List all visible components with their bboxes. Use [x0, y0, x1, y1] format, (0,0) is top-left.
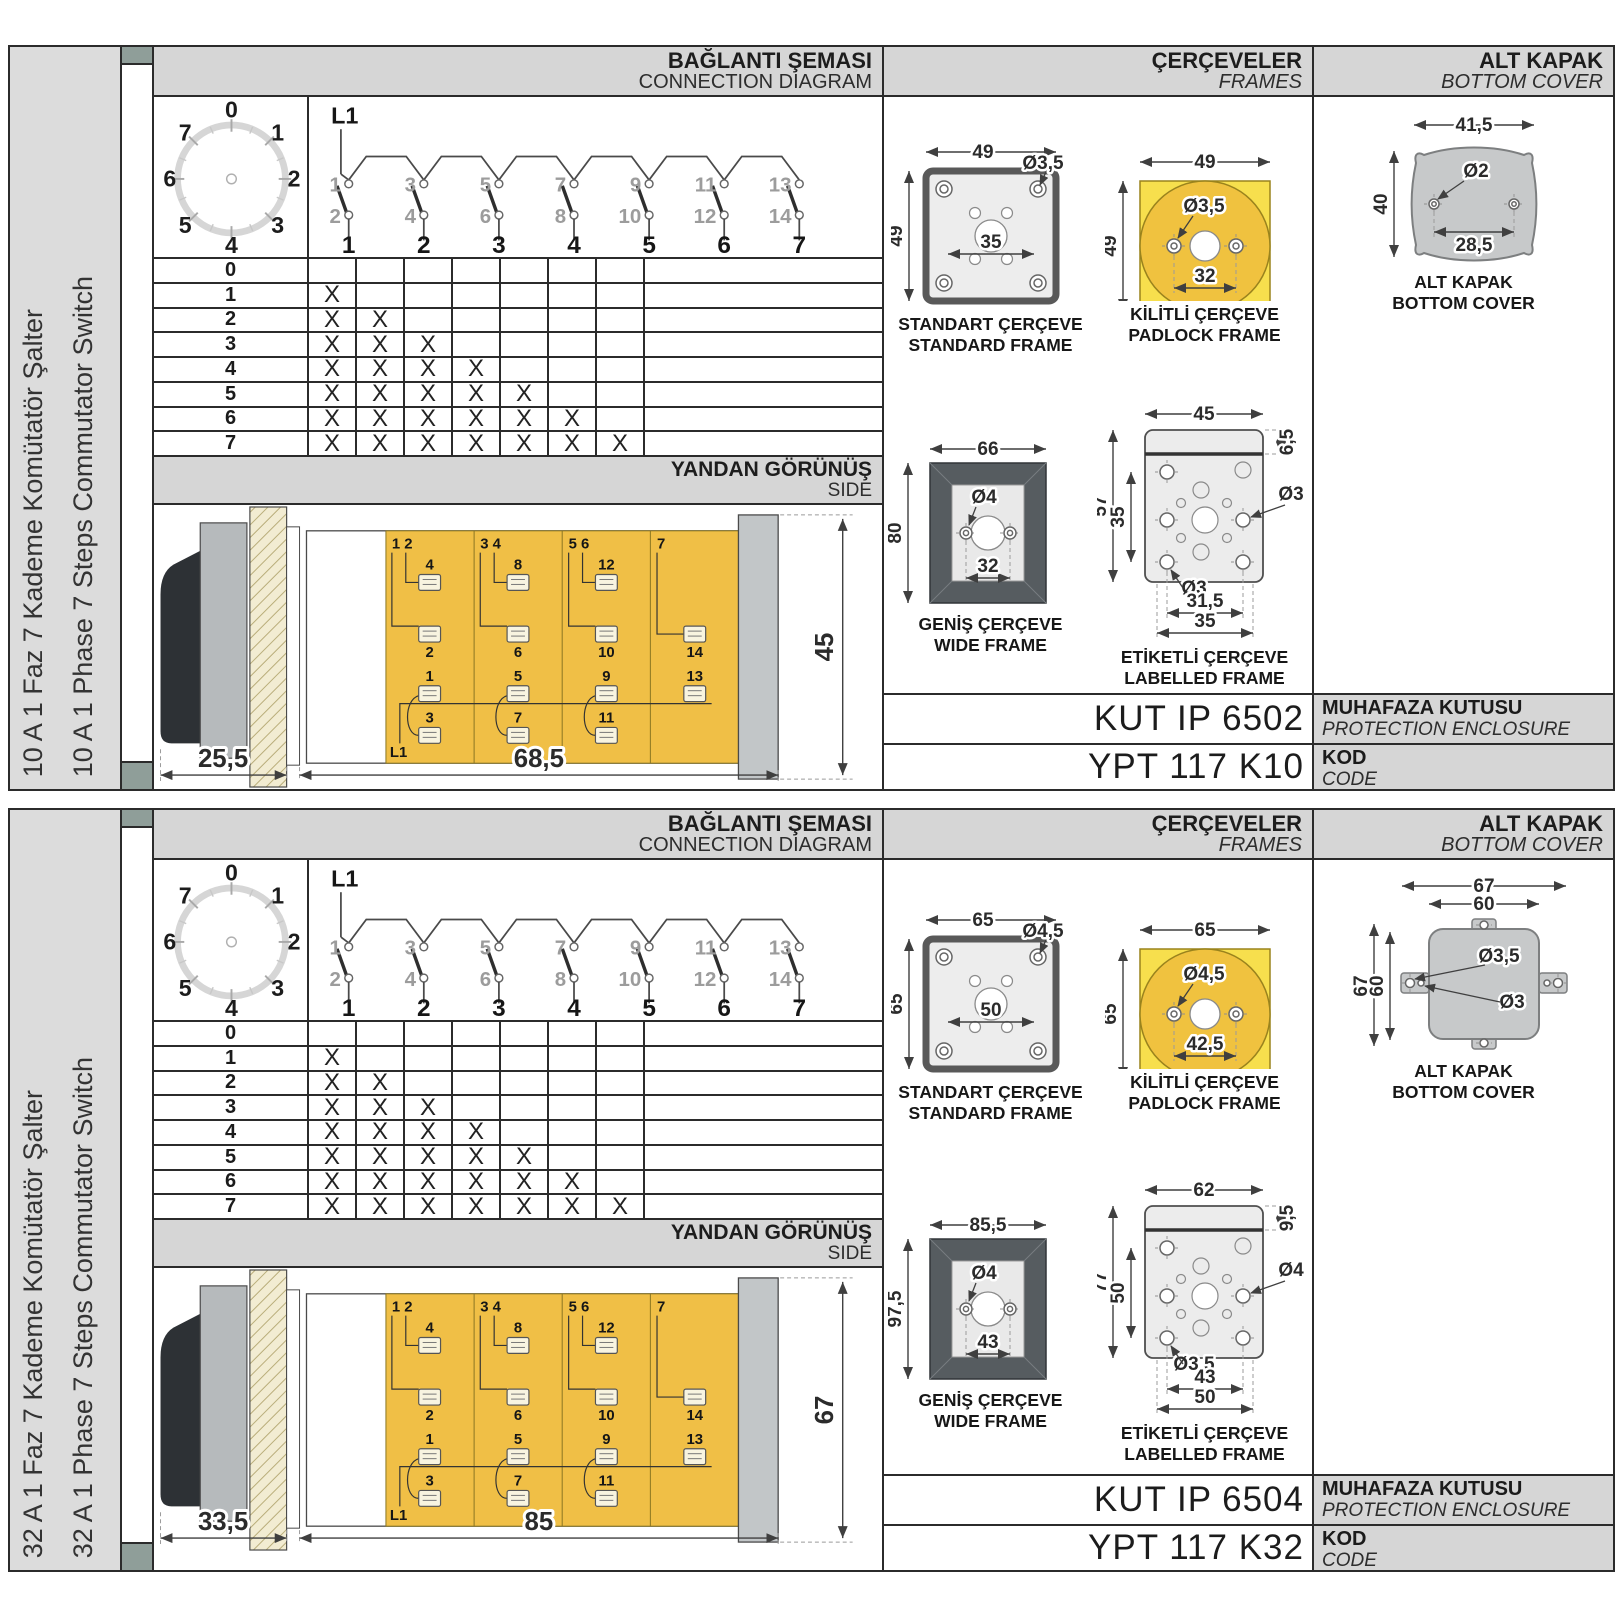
svg-text:6: 6 — [163, 166, 176, 192]
svg-text:65: 65 — [972, 910, 994, 931]
product-code-label: KOD CODE — [1314, 745, 1613, 789]
svg-text:2: 2 — [425, 645, 433, 661]
contact-mark-cell — [549, 383, 597, 406]
svg-text:2: 2 — [330, 205, 341, 228]
contact-mark-cell — [357, 259, 405, 282]
contact-mark-cell — [597, 383, 645, 406]
standard-frame-caption: STANDART ÇERÇEVESTANDARD FRAME — [898, 314, 1082, 355]
contact-mark-cell — [453, 309, 501, 332]
product-title-turkish: 32 A 1 Faz 7 Kademe Komütatör Şalter — [18, 1090, 49, 1558]
svg-text:60: 60 — [1473, 894, 1494, 915]
svg-text:6: 6 — [163, 929, 176, 955]
contact-mark-cell — [597, 1171, 645, 1194]
svg-text:25,5: 25,5 — [198, 745, 248, 773]
table-row: 5XXXXX — [154, 383, 882, 408]
contact-mark-cell — [453, 1047, 501, 1070]
svg-text:3: 3 — [405, 174, 416, 197]
table-filler — [645, 1022, 882, 1045]
padlock-frame-drawing: 49 49 Ø3,5 32 — [1105, 146, 1305, 301]
bottom-cover-header: ALT KAPAK BOTTOM COVER — [1314, 47, 1613, 95]
contact-mark-cell: X — [357, 1146, 405, 1169]
table-row: 1X — [154, 1047, 882, 1072]
svg-text:43: 43 — [1194, 1367, 1215, 1388]
binder-strip — [122, 47, 154, 789]
contact-mark-cell — [501, 1121, 549, 1144]
contact-mark-cell — [453, 1096, 501, 1119]
svg-text:10: 10 — [619, 968, 642, 991]
diagram-row: 0 1 2 3 4 5 6 7 L1 12 34 56 — [154, 97, 882, 259]
svg-text:12: 12 — [694, 968, 717, 991]
svg-text:6: 6 — [480, 205, 491, 228]
rotary-dial-drawing: 0 1 2 3 4 5 6 7 — [156, 861, 306, 1019]
rotary-dial-box: 0 1 2 3 4 5 6 7 — [154, 860, 309, 1020]
svg-text:0: 0 — [225, 98, 238, 122]
contact-mark-cell: X — [597, 432, 645, 455]
header-connection-tr: BAĞLANTI ŞEMASI — [668, 812, 872, 835]
svg-text:3: 3 — [425, 710, 433, 726]
contact-mark-cell — [597, 259, 645, 282]
svg-text:4: 4 — [567, 232, 581, 256]
contact-mark-cell — [309, 259, 357, 282]
contact-mark-cell: X — [453, 1146, 501, 1169]
contact-mark-cell — [597, 1022, 645, 1045]
connection-diagram-header: BAĞLANTI ŞEMASI CONNECTION DIAGRAM — [154, 47, 884, 95]
contact-mark-cell — [357, 1047, 405, 1070]
svg-text:40: 40 — [1371, 193, 1392, 214]
contact-mark-cell — [501, 1047, 549, 1070]
svg-text:7: 7 — [793, 995, 807, 1019]
table-filler — [645, 1146, 882, 1169]
enclosure-code-label: MUHAFAZA KUTUSU PROTECTION ENCLOSURE — [1314, 1476, 1613, 1524]
svg-text:8: 8 — [555, 205, 566, 228]
product-code: YPT 117 K32 — [884, 1526, 1314, 1570]
svg-text:7: 7 — [555, 937, 566, 960]
svg-text:4: 4 — [567, 995, 581, 1019]
contact-mark-cell — [549, 1096, 597, 1119]
svg-text:11: 11 — [599, 1473, 615, 1489]
contact-mark-cell — [597, 1121, 645, 1144]
table-row: 5XXXXX — [154, 1146, 882, 1171]
side-header-en: SIDE — [828, 481, 872, 501]
mounting-panel-hatched — [250, 1270, 287, 1550]
contact-mark-cell: X — [309, 1171, 357, 1194]
contact-mark-cell: X — [357, 358, 405, 381]
svg-text:32: 32 — [1194, 266, 1215, 287]
standard-frame-drawing: 65 Ø4,5 65 50 — [891, 904, 1091, 1079]
contact-mark-cell: X — [309, 1096, 357, 1119]
svg-text:41,5: 41,5 — [1456, 115, 1493, 136]
contact-mark-cell — [549, 333, 597, 356]
svg-text:35: 35 — [1194, 611, 1216, 632]
svg-text:9: 9 — [602, 1432, 610, 1448]
contact-mark-cell: X — [405, 1146, 453, 1169]
contact-mark-cell — [597, 1096, 645, 1119]
header-connection-tr: BAĞLANTI ŞEMASI — [668, 49, 872, 72]
contact-mark-cell: X — [453, 1171, 501, 1194]
side-view-header: YANDAN GÖRÜNÜŞ SIDE — [154, 457, 882, 505]
svg-text:5 6: 5 6 — [569, 1300, 590, 1316]
svg-text:L1: L1 — [390, 1508, 407, 1524]
contact-mark-cell — [501, 333, 549, 356]
right-columns: 65 Ø4,5 65 50 STANDART ÇERÇEVESTANDARD F… — [884, 860, 1613, 1570]
contact-mark-cell — [405, 284, 453, 307]
padlock-frame-caption: KİLİTLİ ÇERÇEVEPADLOCK FRAME — [1128, 1072, 1280, 1113]
svg-text:85,5: 85,5 — [970, 1215, 1007, 1236]
svg-text:3: 3 — [492, 995, 506, 1019]
step-label: 1 — [154, 284, 309, 307]
table-filler — [645, 1096, 882, 1119]
side-header-en: SIDE — [828, 1244, 872, 1264]
svg-text:14: 14 — [686, 645, 703, 661]
product-code: YPT 117 K10 — [884, 745, 1314, 789]
labelled-frame-drawing: 62 9,5 77 50 Ø4 Ø3,5 43 50 — [1097, 1176, 1312, 1420]
contact-mark-cell: X — [405, 383, 453, 406]
rotary-dial-drawing: 0 1 2 3 4 5 6 7 — [156, 98, 306, 256]
step-contact-table: 01X2XX3XXX4XXXX5XXXXX6XXXXXX7XXXXXXX — [154, 259, 882, 457]
svg-text:0: 0 — [225, 861, 238, 885]
contact-mark-cell: X — [309, 309, 357, 332]
contact-mark-cell: X — [357, 309, 405, 332]
labelled-frame-caption: ETİKETLİ ÇERÇEVELABELLED FRAME — [1121, 1423, 1288, 1464]
contact-mark-cell — [453, 284, 501, 307]
header-cover-en: BOTTOM COVER — [1441, 835, 1603, 856]
contact-mark-cell: X — [405, 1195, 453, 1218]
svg-text:49: 49 — [972, 142, 993, 163]
output-numbers: 12 34 56 7 — [342, 995, 806, 1019]
contact-mark-cell: X — [357, 1072, 405, 1095]
svg-text:8: 8 — [514, 1321, 522, 1337]
svg-text:50: 50 — [1108, 1283, 1129, 1304]
product-code-row: YPT 117 K32 KOD CODE — [884, 1524, 1613, 1570]
svg-text:5 6: 5 6 — [569, 537, 590, 553]
output-numbers: 12 34 56 7 — [342, 232, 806, 256]
product-title-english: 32 A 1 Phase 7 Steps Commutator Switch — [68, 1057, 99, 1558]
table-filler — [645, 1121, 882, 1144]
product-code-label: KOD CODE — [1314, 1526, 1613, 1570]
connection-diagram-header: BAĞLANTI ŞEMASI CONNECTION DIAGRAM — [154, 810, 884, 858]
svg-text:14: 14 — [686, 1408, 703, 1424]
svg-text:13: 13 — [686, 669, 703, 685]
svg-text:49: 49 — [891, 226, 907, 247]
connection-diagram-drawing: L1 12 34 56 78 910 1112 1314 12 34 — [309, 98, 879, 256]
svg-text:2: 2 — [417, 232, 431, 256]
svg-text:80: 80 — [888, 522, 906, 543]
svg-text:7: 7 — [555, 174, 566, 197]
svg-text:12: 12 — [598, 1321, 615, 1337]
contact-mark-cell — [309, 1022, 357, 1045]
contact-mark-cell — [405, 1072, 453, 1095]
panel-content: BAĞLANTI ŞEMASI CONNECTION DIAGRAM ÇERÇE… — [154, 47, 1613, 789]
contact-mark-cell: X — [501, 1146, 549, 1169]
svg-text:49: 49 — [1194, 152, 1215, 173]
bottom-cover-caption: ALT KAPAKBOTTOM COVER — [1392, 1061, 1535, 1102]
diagram-row: 0 1 2 3 4 5 6 7 L1 12 34 56 — [154, 860, 882, 1022]
contact-mark-cell: X — [357, 1171, 405, 1194]
binder-strip — [122, 810, 154, 1570]
svg-text:33,5: 33,5 — [198, 1508, 248, 1536]
svg-text:31,5: 31,5 — [1187, 591, 1224, 612]
svg-text:4: 4 — [405, 968, 417, 991]
rear-cap — [738, 515, 778, 779]
table-filler — [645, 1195, 882, 1218]
header-frames-tr: ÇERÇEVELER — [1152, 49, 1302, 72]
side-header-tr: YANDAN GÖRÜNÜŞ — [671, 459, 872, 481]
svg-text:6: 6 — [717, 995, 731, 1019]
svg-text:1: 1 — [425, 669, 433, 685]
svg-text:5: 5 — [642, 995, 656, 1019]
mounting-panel-hatched — [250, 507, 287, 787]
svg-text:4: 4 — [425, 1321, 434, 1337]
enclosure-code: KUT IP 6504 — [884, 1476, 1314, 1524]
table-row: 3XXX — [154, 1096, 882, 1121]
contact-mark-cell — [549, 1072, 597, 1095]
svg-text:1 2: 1 2 — [392, 537, 413, 553]
connection-column: 0 1 2 3 4 5 6 7 L1 12 34 56 — [154, 97, 884, 789]
table-row: 4XXXX — [154, 358, 882, 383]
svg-text:1: 1 — [342, 995, 356, 1019]
svg-text:1: 1 — [271, 882, 284, 908]
table-filler — [645, 408, 882, 431]
header-frames-tr: ÇERÇEVELER — [1152, 812, 1302, 835]
contact-mark-cell — [453, 259, 501, 282]
contact-mark-cell — [453, 333, 501, 356]
table-filler — [645, 358, 882, 381]
svg-text:9,5: 9,5 — [1277, 1205, 1298, 1232]
contact-mark-cell: X — [405, 1171, 453, 1194]
side-view-drawing: 1 2 3 4 5 6 7 4 8 12 2 6 10 14 1 5 9 13 … — [154, 505, 882, 789]
svg-text:3: 3 — [492, 232, 506, 256]
side-view-header: YANDAN GÖRÜNÜŞ SIDE — [154, 1220, 882, 1268]
svg-text:14: 14 — [769, 968, 792, 991]
step-label: 2 — [154, 309, 309, 332]
enclosure-code-row: KUT IP 6504 MUHAFAZA KUTUSU PROTECTION E… — [884, 1474, 1613, 1524]
contact-mark-cell: X — [357, 1096, 405, 1119]
binder-tab-bottom — [122, 1542, 152, 1570]
table-row: 2XX — [154, 1072, 882, 1097]
frames-header: ÇERÇEVELER FRAMES — [884, 47, 1314, 95]
wide-frame-caption: GENİŞ ÇERÇEVEWIDE FRAME — [919, 1390, 1063, 1431]
svg-text:12: 12 — [694, 205, 717, 228]
standard-frame-figure: 49 Ø3,5 49 35 STANDART ÇERÇEVESTANDARD F… — [891, 136, 1091, 355]
step-label: 0 — [154, 259, 309, 282]
contact-mark-cell: X — [309, 284, 357, 307]
svg-text:28,5: 28,5 — [1456, 235, 1493, 256]
contact-mark-cell: X — [405, 358, 453, 381]
contact-mark-cell — [549, 259, 597, 282]
svg-text:Ø3,5: Ø3,5 — [1183, 196, 1225, 217]
bottom-cover-header: ALT KAPAK BOTTOM COVER — [1314, 810, 1613, 858]
table-row: 2XX — [154, 309, 882, 334]
table-filler — [645, 284, 882, 307]
product-panel-32a: 32 A 1 Faz 7 Kademe Komütatör Şalter 32 … — [8, 808, 1615, 1572]
table-filler — [645, 259, 882, 282]
svg-text:L1: L1 — [390, 745, 407, 761]
frames-column: 49 Ø3,5 49 35 STANDART ÇERÇEVESTANDARD F… — [884, 97, 1314, 693]
panel-main: 0 1 2 3 4 5 6 7 L1 12 34 56 — [154, 97, 1613, 789]
contact-mark-cell — [501, 358, 549, 381]
svg-text:2: 2 — [287, 166, 300, 192]
svg-text:13: 13 — [769, 937, 792, 960]
catalog-page: { "colors": { "panel_border": "#2b2b2b",… — [0, 0, 1623, 1623]
wide-frame-drawing: 85,5 97,5 Ø4 43 — [888, 1209, 1093, 1387]
side-view-area: 1 2 3 4 5 6 7 4 8 12 2 6 10 14 1 5 9 13 … — [154, 1268, 882, 1570]
contact-mark-cell: X — [309, 358, 357, 381]
svg-text:1: 1 — [330, 937, 341, 960]
contact-mark-cell — [357, 284, 405, 307]
svg-text:Ø3: Ø3 — [1278, 484, 1303, 505]
bottom-cover-column: 67 60 67 60 Ø3,5 Ø3 — [1314, 860, 1613, 1474]
contact-mark-cell: X — [549, 1195, 597, 1218]
svg-text:1: 1 — [342, 232, 356, 256]
contact-mark-cell: X — [357, 1195, 405, 1218]
product-title-sidebar: 32 A 1 Faz 7 Kademe Komütatör Şalter 32 … — [10, 810, 122, 1570]
svg-text:5: 5 — [642, 232, 656, 256]
step-contact-table: 01X2XX3XXX4XXXX5XXXXX6XXXXXX7XXXXXXX — [154, 1022, 882, 1220]
contact-mark-cell: X — [309, 432, 357, 455]
contact-mark-cell — [501, 1072, 549, 1095]
contact-mark-cell: X — [309, 1072, 357, 1095]
svg-text:35: 35 — [980, 232, 1002, 253]
contact-mark-cell — [597, 309, 645, 332]
svg-text:10: 10 — [598, 645, 615, 661]
standard-frame-figure: 65 Ø4,5 65 50 STANDART ÇERÇEVESTANDARD F… — [891, 904, 1091, 1123]
step-label: 4 — [154, 1121, 309, 1144]
contact-mark-cell: X — [405, 432, 453, 455]
contact-mark-cell — [501, 309, 549, 332]
connection-diagram-box: L1 12 34 56 78 910 1112 1314 12 34 — [309, 97, 882, 257]
svg-text:7: 7 — [514, 1473, 522, 1489]
svg-text:32: 32 — [977, 556, 998, 577]
step-label: 5 — [154, 383, 309, 406]
contact-mark-cell — [549, 1022, 597, 1045]
bottom-cover-figure: 67 60 67 60 Ø3,5 Ø3 — [1344, 874, 1584, 1102]
contact-mark-cell: X — [501, 1195, 549, 1218]
standard-frame-drawing: 49 Ø3,5 49 35 — [891, 136, 1091, 311]
spacer-plate — [287, 1290, 300, 1528]
contact-mark-cell — [357, 1022, 405, 1045]
switch-handle — [161, 549, 205, 744]
spacer-plate — [287, 527, 300, 765]
wide-frame-figure: 66 80 Ø4 32 GENİŞ ÇERÇEVEWIDE FRAME — [888, 433, 1093, 655]
frames-header: ÇERÇEVELER FRAMES — [884, 810, 1314, 858]
product-title-english: 10 A 1 Phase 7 Steps Commutator Switch — [68, 276, 99, 777]
svg-text:9: 9 — [630, 937, 641, 960]
svg-text:5: 5 — [480, 174, 491, 197]
header-cover-tr: ALT KAPAK — [1479, 49, 1603, 72]
table-filler — [645, 383, 882, 406]
contact-mark-cell: X — [309, 1195, 357, 1218]
table-row: 7XXXXXXX — [154, 432, 882, 457]
svg-text:9: 9 — [630, 174, 641, 197]
svg-text:7: 7 — [657, 537, 665, 553]
contact-mark-cell — [597, 284, 645, 307]
svg-text:Ø4,5: Ø4,5 — [1183, 964, 1225, 985]
svg-text:L1: L1 — [331, 102, 358, 128]
step-label: 4 — [154, 358, 309, 381]
contact-mark-cell: X — [453, 432, 501, 455]
svg-text:50: 50 — [1194, 1387, 1215, 1408]
table-row: 7XXXXXXX — [154, 1195, 882, 1220]
svg-text:8: 8 — [514, 558, 522, 574]
svg-text:3: 3 — [425, 1473, 433, 1489]
step-label: 2 — [154, 1072, 309, 1095]
bottom-cover-drawing: 67 60 67 60 Ø3,5 Ø3 — [1344, 874, 1584, 1058]
product-title-sidebar: 10 A 1 Faz 7 Kademe Komütatör Şalter 10 … — [10, 47, 122, 789]
svg-text:7: 7 — [657, 1300, 665, 1316]
svg-text:11: 11 — [599, 710, 615, 726]
contact-mark-cell: X — [357, 383, 405, 406]
step-label: 5 — [154, 1146, 309, 1169]
table-row: 4XXXX — [154, 1121, 882, 1146]
step-label: 6 — [154, 1171, 309, 1194]
contact-mark-cell: X — [501, 432, 549, 455]
svg-text:2: 2 — [330, 968, 341, 991]
contact-mark-cell — [549, 309, 597, 332]
padlock-frame-figure: 65 65 Ø4,5 42,5 KİLİTLİ ÇERÇEVEPADLOCK F… — [1105, 914, 1305, 1113]
contact-mark-cell: X — [357, 1121, 405, 1144]
contact-mark-cell — [549, 1121, 597, 1144]
contact-mark-cell: X — [357, 333, 405, 356]
contact-mark-cell: X — [309, 408, 357, 431]
svg-text:9: 9 — [602, 669, 610, 685]
svg-text:2: 2 — [425, 1408, 433, 1424]
step-label: 1 — [154, 1047, 309, 1070]
contact-mark-cell: X — [453, 358, 501, 381]
step-label: 3 — [154, 1096, 309, 1119]
contact-mark-cell: X — [309, 1047, 357, 1070]
svg-text:3: 3 — [405, 937, 416, 960]
section-header-band: BAĞLANTI ŞEMASI CONNECTION DIAGRAM ÇERÇE… — [154, 47, 1613, 97]
contact-mark-cell — [597, 1072, 645, 1095]
svg-text:12: 12 — [598, 558, 615, 574]
svg-text:Ø4,5: Ø4,5 — [1022, 921, 1064, 942]
side-view-drawing: 1 2 3 4 5 6 7 4 8 12 2 6 10 14 1 5 9 13 … — [154, 1268, 882, 1552]
svg-text:Ø3,5: Ø3,5 — [1022, 153, 1064, 174]
contact-mark-cell: X — [309, 333, 357, 356]
contact-mark-cell — [549, 284, 597, 307]
svg-text:42,5: 42,5 — [1186, 1034, 1223, 1055]
svg-text:Ø3: Ø3 — [1499, 992, 1524, 1013]
contact-mark-cell: X — [309, 1146, 357, 1169]
contact-mark-cell — [453, 1022, 501, 1045]
contact-mark-cell — [501, 1096, 549, 1119]
svg-text:Ø4: Ø4 — [971, 487, 997, 508]
svg-text:2: 2 — [417, 995, 431, 1019]
table-filler — [645, 1171, 882, 1194]
svg-text:7: 7 — [514, 710, 522, 726]
header-connection-en: CONNECTION DIAGRAM — [639, 835, 872, 856]
product-title-turkish: 10 A 1 Faz 7 Kademe Komütatör Şalter — [18, 309, 49, 777]
svg-text:11: 11 — [695, 937, 717, 960]
contact-mark-cell: X — [453, 408, 501, 431]
svg-text:97,5: 97,5 — [888, 1290, 906, 1327]
frames-column: 65 Ø4,5 65 50 STANDART ÇERÇEVESTANDARD F… — [884, 860, 1314, 1474]
enclosure-code-row: KUT IP 6502 MUHAFAZA KUTUSU PROTECTION E… — [884, 693, 1613, 743]
table-row: 6XXXXXX — [154, 408, 882, 433]
wide-frame-caption: GENİŞ ÇERÇEVEWIDE FRAME — [919, 614, 1063, 655]
contact-mark-cell — [501, 1022, 549, 1045]
svg-text:4: 4 — [425, 558, 434, 574]
contact-mark-cell — [597, 408, 645, 431]
wide-frame-figure: 85,5 97,5 Ø4 43 GENİŞ ÇERÇEVEWIDE FRAME — [888, 1209, 1093, 1431]
product-panel-10a: 10 A 1 Faz 7 Kademe Komütatör Şalter 10 … — [8, 45, 1615, 791]
contact-mark-cell — [597, 1146, 645, 1169]
svg-text:4: 4 — [225, 232, 238, 256]
svg-text:7: 7 — [178, 119, 191, 145]
contact-mark-cell — [549, 1146, 597, 1169]
labelled-frame-figure: 45 6,5 57 35 Ø3 Ø3 31,5 35 ETİKETLİ ÇERÇ… — [1097, 400, 1312, 688]
svg-text:2: 2 — [287, 929, 300, 955]
